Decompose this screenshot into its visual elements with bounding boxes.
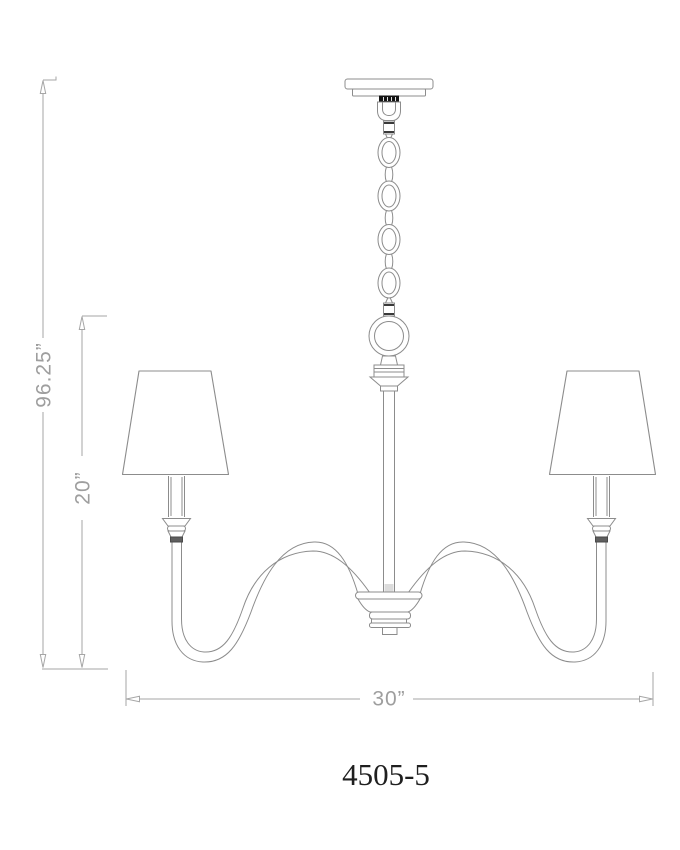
candle-cup-dish bbox=[588, 519, 616, 527]
hub-knob bbox=[383, 628, 398, 635]
canopy-top-plate bbox=[345, 79, 433, 89]
fixture-height-label: 20” bbox=[71, 471, 94, 504]
arrowhead-left-icon bbox=[127, 696, 140, 701]
right-arm-outer bbox=[420, 542, 606, 662]
right-lamp-shade bbox=[550, 371, 656, 475]
dimension-overall-height: 96.25” bbox=[32, 77, 56, 668]
center-stem-shading bbox=[385, 584, 394, 592]
overall-height-label: 96.25” bbox=[32, 342, 55, 408]
candle-cup-taper bbox=[168, 531, 185, 537]
candle-sleeve bbox=[169, 476, 185, 517]
hub-bell bbox=[358, 599, 420, 612]
right-arm-inner bbox=[408, 542, 597, 652]
canopy-bottom-plate bbox=[353, 89, 426, 96]
candle-cup-band bbox=[171, 537, 183, 542]
candle-cup-dish bbox=[163, 519, 191, 527]
left-arm-outer bbox=[172, 542, 358, 662]
hub-band bbox=[370, 612, 411, 619]
hub-band bbox=[372, 619, 407, 623]
right-candle bbox=[588, 476, 616, 542]
candle-cup-ring bbox=[168, 526, 186, 531]
suspension-ring-finial bbox=[369, 316, 409, 391]
extension-tick-top bbox=[43, 77, 56, 81]
central-hub bbox=[356, 592, 423, 635]
candle-cup-taper bbox=[593, 531, 610, 537]
canopy-loop-fitting bbox=[378, 102, 401, 121]
finial-neck bbox=[381, 356, 398, 365]
finial-block bbox=[374, 365, 404, 377]
dimension-fixture-height: 20” bbox=[71, 316, 107, 668]
left-lamp-shade bbox=[123, 371, 229, 475]
technical-drawing-canvas: 96.25” 20” 30” 4505-5 bbox=[0, 0, 680, 850]
left-arm-inner bbox=[182, 542, 371, 652]
hanging-chain bbox=[378, 121, 400, 316]
arrowhead-down-icon bbox=[40, 655, 45, 668]
chandelier-dimension-drawing: 96.25” 20” 30” 4505-5 bbox=[0, 0, 680, 850]
finial-band bbox=[381, 386, 398, 391]
finial-flare bbox=[370, 377, 408, 386]
center-stem bbox=[384, 391, 395, 592]
arrowhead-right-icon bbox=[640, 696, 653, 701]
dimension-annotations: 96.25” 20” 30” bbox=[32, 77, 653, 711]
arrowhead-up-icon bbox=[79, 317, 84, 330]
arrowhead-down-icon bbox=[79, 655, 84, 668]
chandelier-drawing bbox=[123, 79, 656, 662]
hub-cap bbox=[356, 592, 423, 599]
dimension-width: 30” bbox=[126, 670, 653, 710]
hub-plate bbox=[370, 623, 411, 628]
left-candle bbox=[163, 476, 191, 542]
arrowhead-up-icon bbox=[40, 81, 45, 94]
ceiling-canopy bbox=[345, 79, 433, 121]
width-label: 30” bbox=[372, 687, 405, 710]
candle-cup-band bbox=[596, 537, 608, 542]
candle-sleeve bbox=[594, 476, 610, 517]
candle-cup-ring bbox=[593, 526, 611, 531]
model-number: 4505-5 bbox=[342, 757, 430, 792]
